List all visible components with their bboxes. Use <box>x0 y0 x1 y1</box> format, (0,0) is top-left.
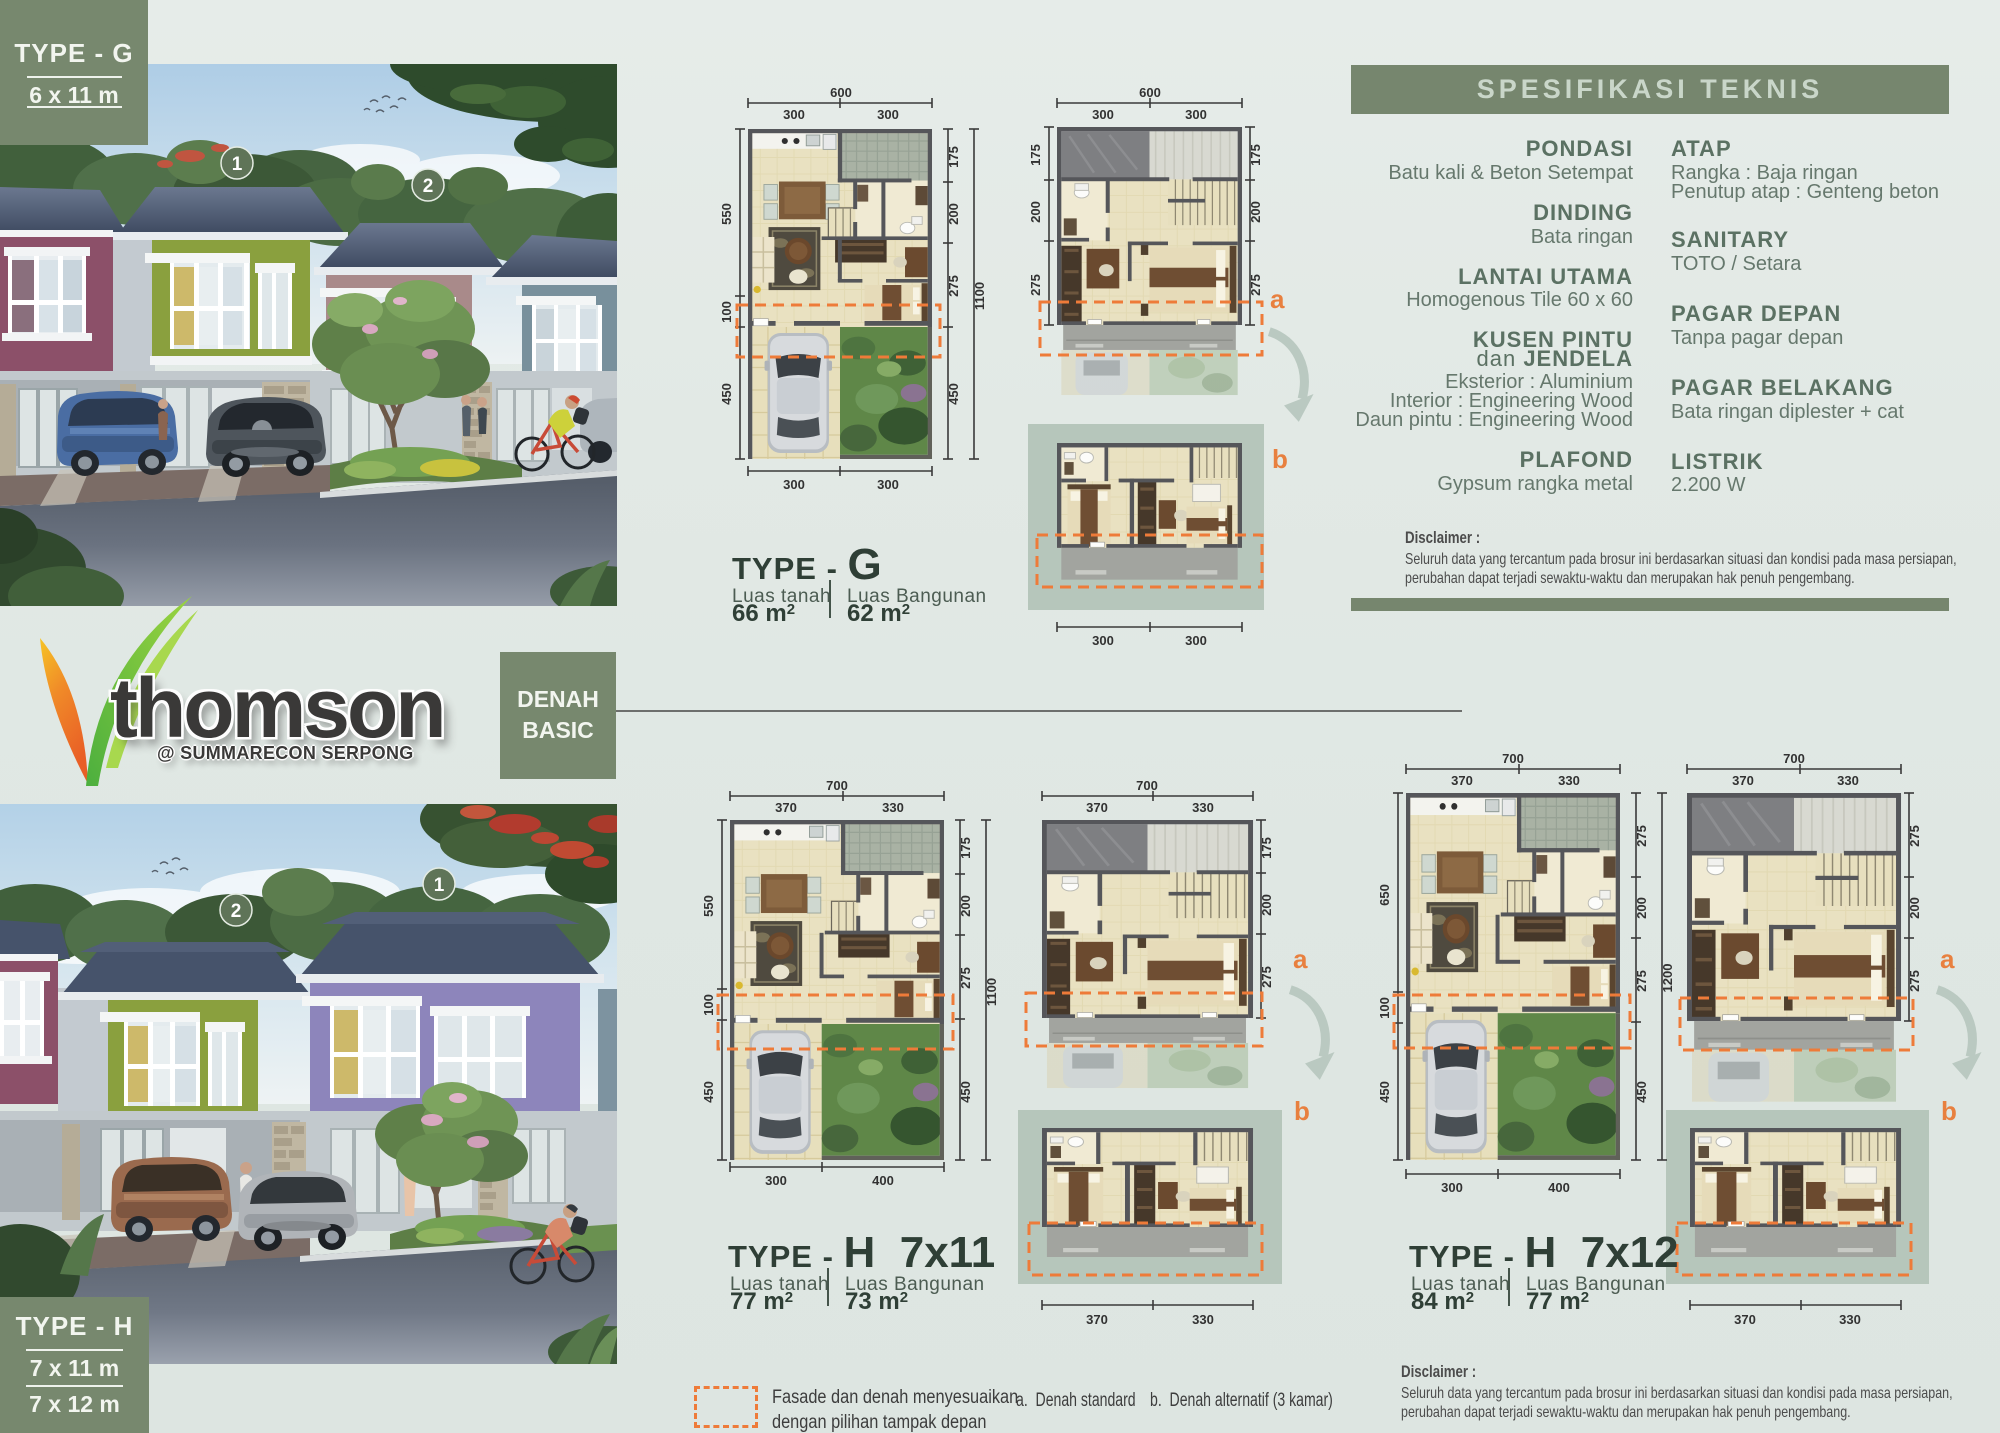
svg-text:275: 275 <box>1248 274 1263 296</box>
svg-text:a: a <box>1940 944 1955 974</box>
svg-text:a: a <box>1293 944 1308 974</box>
svg-text:330: 330 <box>1558 773 1580 788</box>
svg-text:650: 650 <box>1377 884 1392 906</box>
svg-text:450: 450 <box>958 1081 973 1103</box>
svg-text:b: b <box>1294 1096 1310 1126</box>
svg-text:330: 330 <box>1839 1312 1861 1327</box>
svg-text:175: 175 <box>1028 144 1043 166</box>
svg-text:b: b <box>1272 444 1288 474</box>
svg-text:700: 700 <box>826 778 848 793</box>
svg-text:175: 175 <box>1248 144 1263 166</box>
svg-text:175: 175 <box>958 837 973 859</box>
svg-text:200: 200 <box>1634 897 1649 919</box>
svg-text:300: 300 <box>765 1173 787 1188</box>
svg-text:370: 370 <box>1732 773 1754 788</box>
svg-text:1: 1 <box>434 875 445 896</box>
svg-text:370: 370 <box>1734 1312 1756 1327</box>
svg-text:330: 330 <box>1837 773 1859 788</box>
svg-text:275: 275 <box>958 967 973 989</box>
svg-text:450: 450 <box>1634 1081 1649 1103</box>
svg-text:600: 600 <box>1139 85 1161 100</box>
svg-text:a: a <box>1270 284 1285 314</box>
svg-text:200: 200 <box>946 203 961 225</box>
svg-text:300: 300 <box>877 477 899 492</box>
svg-text:275: 275 <box>1907 825 1922 847</box>
svg-text:330: 330 <box>1192 1312 1214 1327</box>
svg-text:200: 200 <box>958 895 973 917</box>
svg-text:370: 370 <box>1451 773 1473 788</box>
svg-text:550: 550 <box>719 203 734 225</box>
svg-text:370: 370 <box>1086 1312 1108 1327</box>
svg-text:400: 400 <box>872 1173 894 1188</box>
svg-text:200: 200 <box>1259 894 1274 916</box>
svg-text:300: 300 <box>1092 633 1114 648</box>
svg-text:300: 300 <box>1185 107 1207 122</box>
svg-text:300: 300 <box>783 477 805 492</box>
svg-text:300: 300 <box>783 107 805 122</box>
svg-text:300: 300 <box>1441 1180 1463 1195</box>
svg-text:400: 400 <box>1548 1180 1570 1195</box>
svg-text:550: 550 <box>701 895 716 917</box>
svg-text:370: 370 <box>1086 800 1108 815</box>
svg-text:2: 2 <box>423 176 434 197</box>
svg-text:600: 600 <box>830 85 852 100</box>
svg-text:450: 450 <box>701 1081 716 1103</box>
svg-text:1100: 1100 <box>972 282 987 310</box>
svg-text:275: 275 <box>1259 966 1274 988</box>
svg-text:300: 300 <box>877 107 899 122</box>
svg-text:330: 330 <box>1192 800 1214 815</box>
svg-text:450: 450 <box>1377 1081 1392 1103</box>
svg-text:175: 175 <box>1259 837 1274 859</box>
svg-text:100: 100 <box>1377 997 1392 1019</box>
svg-text:2: 2 <box>231 901 242 922</box>
svg-text:700: 700 <box>1502 751 1524 766</box>
svg-text:275: 275 <box>1634 970 1649 992</box>
svg-text:1: 1 <box>232 154 243 175</box>
svg-text:1100: 1100 <box>984 978 999 1006</box>
svg-text:275: 275 <box>1028 274 1043 296</box>
svg-text:200: 200 <box>1248 201 1263 223</box>
svg-text:300: 300 <box>1092 107 1114 122</box>
svg-text:300: 300 <box>1185 633 1207 648</box>
svg-text:b: b <box>1941 1096 1957 1126</box>
svg-text:275: 275 <box>1634 825 1649 847</box>
svg-text:700: 700 <box>1136 778 1158 793</box>
svg-text:100: 100 <box>701 994 716 1016</box>
svg-text:700: 700 <box>1783 751 1805 766</box>
svg-text:275: 275 <box>1907 970 1922 992</box>
svg-text:200: 200 <box>1028 201 1043 223</box>
svg-text:1200: 1200 <box>1660 964 1675 993</box>
svg-text:370: 370 <box>775 800 797 815</box>
svg-text:450: 450 <box>946 383 961 405</box>
svg-text:450: 450 <box>719 383 734 405</box>
svg-text:175: 175 <box>946 146 961 168</box>
svg-text:200: 200 <box>1907 897 1922 919</box>
svg-text:275: 275 <box>946 275 961 297</box>
svg-text:100: 100 <box>719 301 734 323</box>
svg-text:330: 330 <box>882 800 904 815</box>
